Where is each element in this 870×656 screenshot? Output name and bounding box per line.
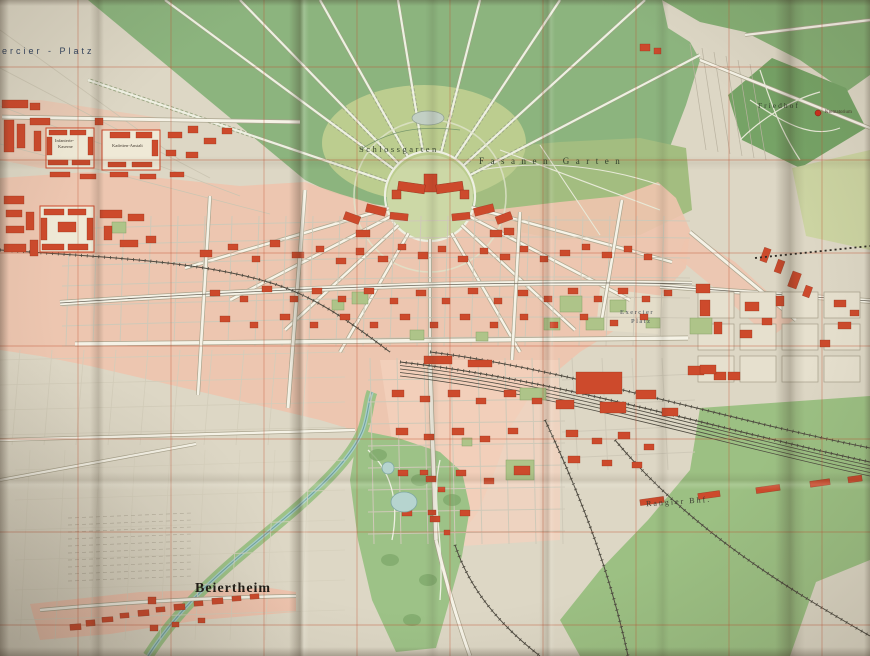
schlossgarten-pond [412,111,444,125]
map-artwork [0,0,870,656]
stadtgarten-pond [391,492,417,512]
krematorium-marker [815,110,821,116]
stadtgarten-pond-small [382,462,394,474]
folded-city-map-photo: ercier - Platz Schlossgarten Fasanen Gar… [0,0,870,656]
